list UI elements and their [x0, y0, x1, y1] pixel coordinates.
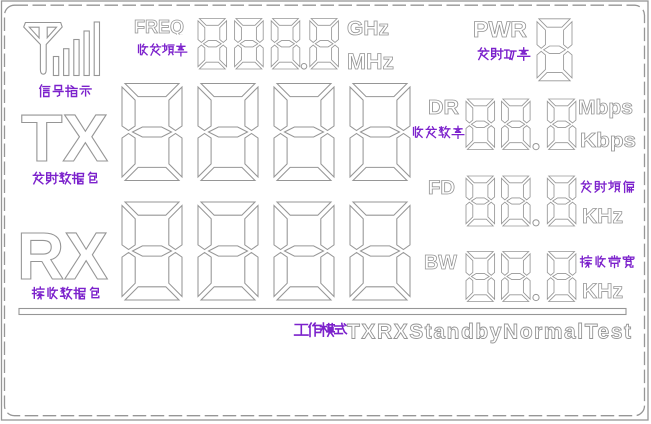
- svg-text:RX: RX: [17, 219, 108, 294]
- svg-text:DR: DR: [428, 97, 460, 119]
- svg-text:TXRXStandbyNormalTest: TXRXStandbyNormalTest: [347, 321, 631, 344]
- svg-text:KHz: KHz: [582, 280, 623, 303]
- svg-text:FD: FD: [428, 178, 455, 199]
- svg-text:Mbps: Mbps: [578, 96, 633, 119]
- svg-text:MHz: MHz: [347, 49, 394, 74]
- svg-text:TX: TX: [21, 101, 108, 176]
- svg-text:BW: BW: [424, 251, 458, 274]
- svg-text:PWR: PWR: [473, 17, 527, 42]
- svg-text:Kbps: Kbps: [580, 129, 636, 152]
- svg-text:KHz: KHz: [582, 205, 623, 228]
- svg-text:GHz: GHz: [347, 17, 389, 40]
- svg-text:FREQ: FREQ: [134, 17, 184, 37]
